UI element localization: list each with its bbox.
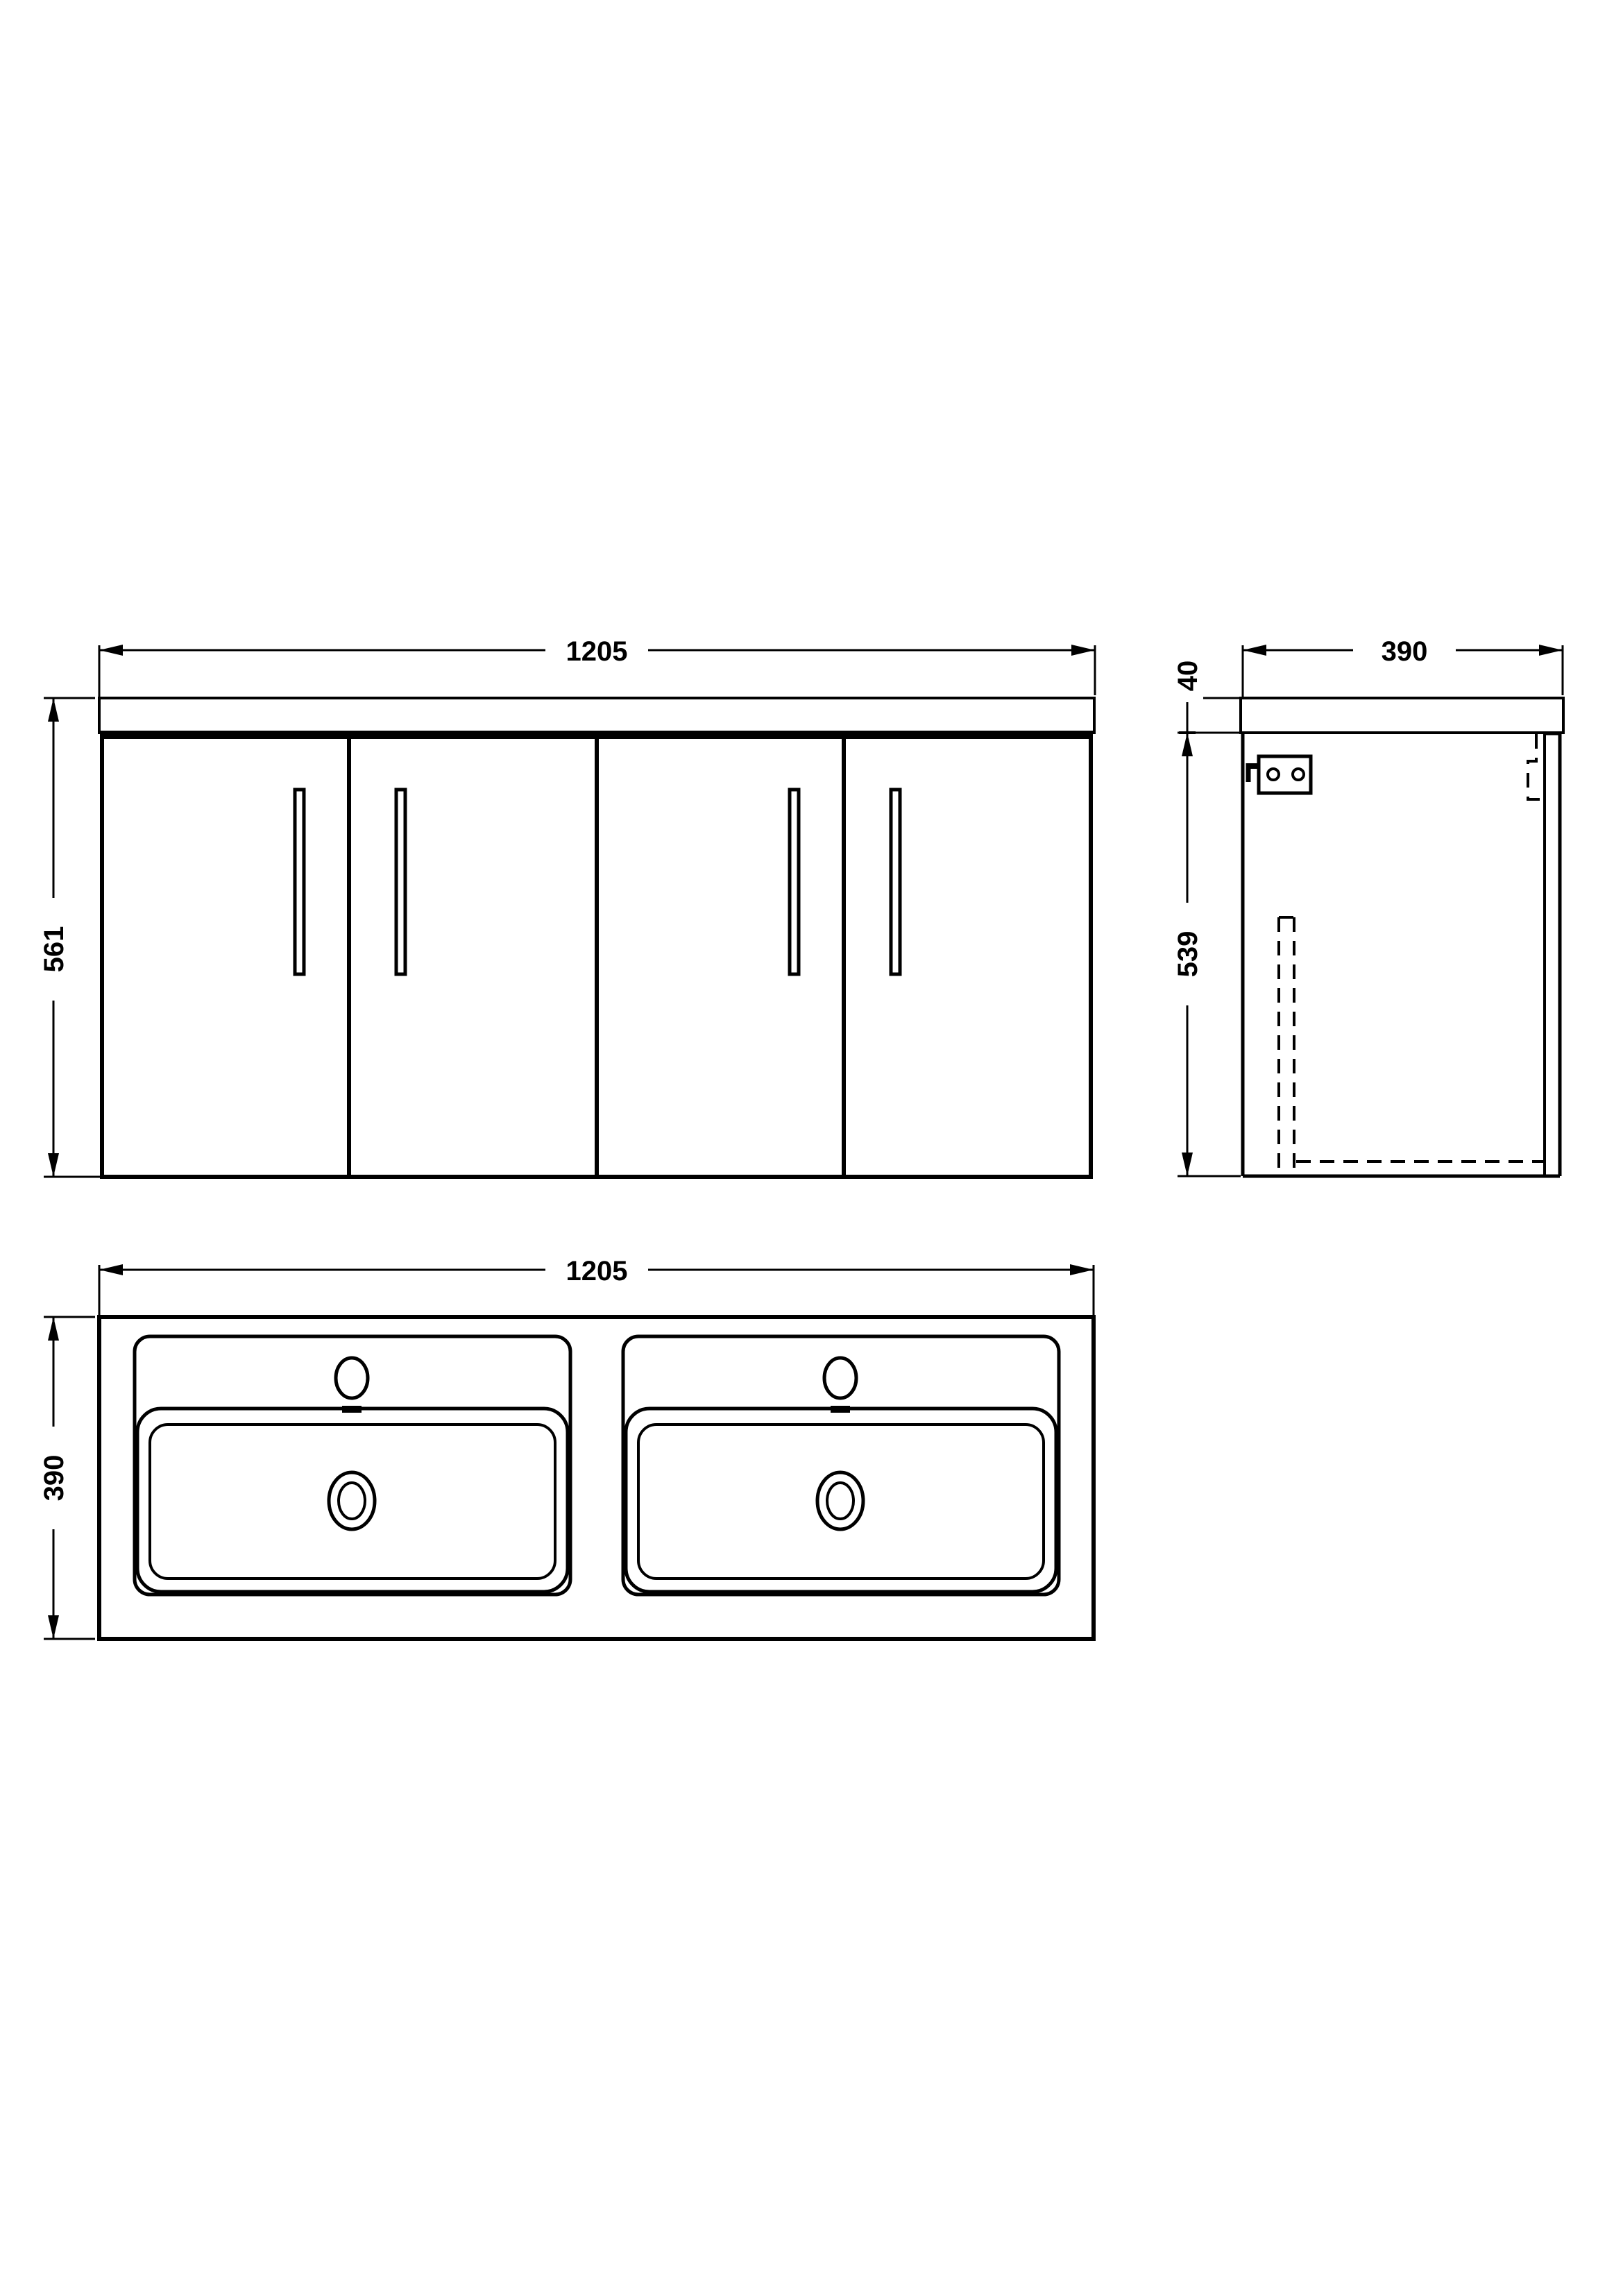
- arrowhead-left: [1243, 645, 1266, 656]
- hidden-hanging-rail: [1528, 734, 1543, 799]
- arrowhead-bottom: [48, 1153, 59, 1177]
- door-handle-2: [396, 790, 405, 974]
- front-height-dimension: 561: [37, 698, 101, 1177]
- plan-width-dim-label: 1205: [566, 1256, 628, 1286]
- arrowhead-bottom: [48, 1615, 59, 1639]
- arrowhead-left: [99, 1264, 123, 1275]
- wall-bracket: [1248, 756, 1311, 793]
- door-handle-1: [295, 790, 304, 974]
- side-worktop: [1241, 698, 1563, 733]
- door-handle-4: [891, 790, 900, 974]
- front-height-dim-label: 561: [39, 926, 69, 973]
- side-worktop-thickness-dimension: 40: [1171, 649, 1239, 733]
- plan-width-dimension: 1205: [99, 1253, 1094, 1316]
- front-width-dim-label: 1205: [566, 636, 628, 667]
- vanity-unit-technical-drawing: 1205 561: [0, 0, 1623, 2296]
- arrowhead-right: [1070, 1264, 1094, 1275]
- arrowhead-right: [1071, 645, 1095, 656]
- arrowhead-top: [1182, 733, 1193, 756]
- side-height-dimension: 539: [1171, 733, 1241, 1176]
- plan-depth-dim-label: 390: [39, 1455, 69, 1502]
- arrowhead-left: [99, 645, 123, 656]
- side-depth-dimension: 390: [1243, 633, 1563, 697]
- front-view: 1205 561: [37, 633, 1095, 1177]
- front-worktop: [99, 698, 1094, 733]
- door-handle-3: [790, 790, 799, 974]
- arrowhead-bottom: [1182, 1153, 1193, 1176]
- front-width-dimension: 1205: [99, 633, 1095, 697]
- arrowhead-top: [48, 698, 59, 722]
- side-hidden-lines: [1279, 734, 1545, 1174]
- plan-view: 1205 390: [37, 1253, 1094, 1639]
- side-height-dim-label: 539: [1173, 931, 1203, 978]
- side-depth-dim-label: 390: [1382, 636, 1428, 667]
- side-worktop-thickness-dim-label: 40: [1173, 661, 1203, 692]
- plan-depth-dimension: 390: [37, 1317, 95, 1639]
- arrowhead-right: [1539, 645, 1563, 656]
- arrowhead-top: [48, 1317, 59, 1341]
- technical-drawing-page: 1205 561: [0, 0, 1623, 2296]
- side-view: 390 40 539: [1171, 633, 1563, 1176]
